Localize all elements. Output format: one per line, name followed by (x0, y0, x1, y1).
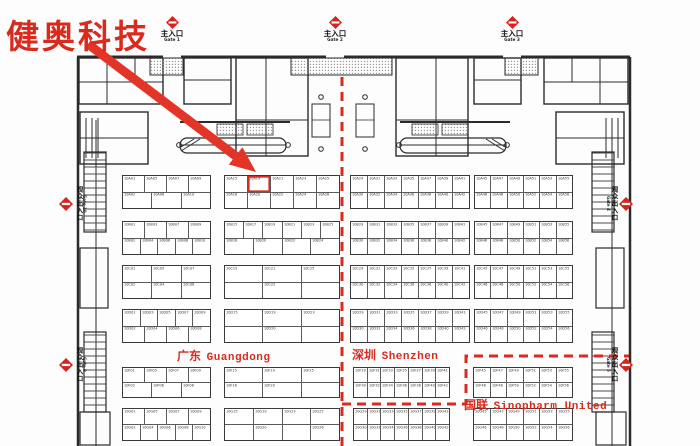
booth-10A10: 10A10 (181, 193, 210, 209)
booth-10G36: 10G36 (394, 425, 408, 440)
booth-10G29: 10G29 (354, 409, 367, 424)
entrance-diamond-icon (329, 16, 342, 29)
booth-10C46: 10C46 (475, 283, 490, 299)
booth-10A26: 10A26 (316, 193, 339, 209)
booth-10C56: 10C56 (556, 283, 572, 299)
booth-10D42: 10D42 (452, 327, 469, 343)
booth-10B23: 10B23 (301, 222, 320, 238)
booth-10B41: 10B41 (452, 222, 469, 238)
booth-10A35: 10A35 (401, 176, 418, 192)
booth-10A51: 10A51 (523, 176, 539, 192)
booth-10C48: 10C48 (490, 283, 506, 299)
region-label-guangdong: 广东 Guangdong (177, 345, 271, 364)
booth-10D46: 10D46 (475, 327, 490, 343)
gate-1-label-en: Gate 1 (142, 38, 202, 42)
booth-10G20: 10G20 (253, 425, 282, 440)
booth-10A36: 10A36 (401, 193, 418, 209)
booth-10A33: 10A33 (384, 176, 401, 192)
booth-10F40: 10F40 (422, 383, 436, 397)
booth-block: 10B2910B3110B3310B3510B3710B3910B4110B30… (350, 221, 470, 255)
booth-10C55: 10C55 (556, 266, 572, 282)
booth-10A19: 10A19 (247, 176, 270, 192)
visitor-gate-left-upper: 观众出入口Gate 10 (59, 186, 86, 221)
booth-10G40: 10G40 (422, 425, 436, 440)
booth-10G38: 10G38 (408, 425, 422, 440)
booth-10F47: 10F47 (490, 368, 507, 382)
booth-10F08: 10F08 (181, 383, 210, 397)
exhibition-floorplan: 10A0110A0510A0710A0910A0210A0810A1010A15… (0, 0, 700, 446)
booth-10A20: 10A20 (247, 193, 270, 209)
booth-block: 10A4510A4710A4910A5110A5310A5510A4610A48… (474, 175, 573, 209)
booth-10G02: 10G02 (123, 425, 140, 440)
booth-10C42: 10C42 (452, 283, 469, 299)
booth-10B34: 10B34 (384, 239, 401, 255)
booth-10D34: 10D34 (384, 327, 401, 343)
booth-10B47: 10B47 (490, 222, 506, 238)
region-label-shenzhen: 深圳 Shenzhen (352, 344, 438, 363)
booth-block: 10D1510D1910D2310D20 (224, 309, 340, 343)
booth-10D47: 10D47 (490, 310, 506, 326)
booth-10D40: 10D40 (435, 327, 452, 343)
visitor-gate-right-upper: Gate 4观众出入口 (606, 186, 633, 221)
booth-10D37: 10D37 (418, 310, 435, 326)
booth-10C06: 10C06 (181, 283, 210, 299)
booth-10F42: 10F42 (435, 383, 449, 397)
booth-10A49: 10A49 (507, 176, 523, 192)
booth-10B49: 10B49 (507, 222, 523, 238)
booth-10C45: 10C45 (475, 266, 490, 282)
booth-10A32: 10A32 (367, 193, 384, 209)
booth-10D09: 10D09 (192, 310, 210, 326)
booth-10A34: 10A34 (384, 193, 401, 209)
booth-10G54: 10G54 (539, 425, 556, 440)
booth-10D29: 10D29 (351, 310, 367, 326)
booth-10C01: 10C01 (123, 266, 151, 282)
booth-10C33: 10C33 (384, 266, 401, 282)
booth-10A45: 10A45 (475, 176, 490, 192)
booth-10B53: 10B53 (539, 222, 555, 238)
booth-10B36: 10B36 (401, 239, 418, 255)
booth-10A52: 10A52 (523, 193, 539, 209)
booth-10F30: 10F30 (354, 383, 367, 397)
booth-10D41: 10D41 (452, 310, 469, 326)
visitor-gate-right-lower: Gate 5观众出入口 (606, 347, 633, 382)
booth-10C37: 10C37 (418, 266, 435, 282)
booth-10B25: 10B25 (320, 222, 339, 238)
booth-10F41: 10F41 (435, 368, 449, 382)
booth-10F34: 10F34 (380, 383, 394, 397)
booth-10F45: 10F45 (474, 368, 490, 382)
booth-10F37: 10F37 (408, 368, 422, 382)
entrance-diamond-icon (59, 358, 73, 372)
booth-10D45: 10D45 (475, 310, 490, 326)
booth-10B46: 10B46 (475, 239, 490, 255)
booth-10A54: 10A54 (539, 193, 555, 209)
booth-10A08: 10A08 (151, 193, 180, 209)
booth-10F07: 10F07 (166, 368, 188, 382)
booth-10B09: 10B09 (188, 222, 210, 238)
booth-10D36: 10D36 (401, 327, 418, 343)
booth-cell-open (282, 425, 311, 440)
booth-10D07: 10D07 (175, 310, 193, 326)
booth-10A21: 10A21 (270, 176, 293, 192)
booth-10B51: 10B51 (523, 222, 539, 238)
region-label-sinopharm: 国联 Sinopharm United (464, 394, 607, 413)
booth-10G05: 10G05 (144, 409, 166, 424)
booth-10C39: 10C39 (435, 266, 452, 282)
booth-10B17: 10B17 (243, 222, 262, 238)
booth-10B30: 10B30 (351, 239, 367, 255)
booth-10G35: 10G35 (394, 409, 408, 424)
booth-10G08: 10G08 (175, 425, 193, 440)
booth-10G07: 10G07 (166, 409, 188, 424)
booth-10C50: 10C50 (507, 283, 523, 299)
booth-10G41: 10G41 (435, 409, 449, 424)
booth-10F16: 10F16 (225, 383, 262, 397)
booth-10F39: 10F39 (422, 368, 436, 382)
booth-10B40: 10B40 (435, 239, 452, 255)
booth-10G15: 10G15 (225, 409, 253, 424)
booth-10B32: 10B32 (367, 239, 384, 255)
booth-10G46: 10G46 (474, 425, 490, 440)
booth-10C25: 10C25 (301, 266, 339, 282)
booth-10D05: 10D05 (157, 310, 175, 326)
entrance-diamond-icon (166, 16, 179, 29)
gate-3-label-en: Gate 3 (482, 38, 542, 42)
booth-grid: 10A0110A0510A0710A0910A0210A0810A1010A15… (0, 0, 700, 446)
booth-10C30: 10C30 (351, 283, 367, 299)
booth-10F05: 10F05 (144, 368, 166, 382)
booth-10A25: 10A25 (316, 176, 339, 192)
booth-block: 10C0110C0510C0710C0210C0410C06 (122, 265, 211, 299)
region-guangdong-en: Guangdong (207, 352, 271, 364)
booth-10A50: 10A50 (507, 193, 523, 209)
booth-10G10: 10G10 (192, 425, 210, 440)
booth-10D32: 10D32 (367, 327, 384, 343)
booth-block: 10C2910C3110C3310C3510C3710C3910C4110C30… (350, 265, 470, 299)
booth-10B20: 10B20 (253, 239, 282, 255)
booth-10G39: 10G39 (422, 409, 436, 424)
booth-10G09: 10G09 (188, 409, 210, 424)
booth-10G25: 10G25 (310, 409, 339, 424)
booth-10D54: 10D54 (539, 327, 555, 343)
booth-10A29: 10A29 (351, 176, 367, 192)
booth-10F29: 10F29 (354, 368, 367, 382)
booth-10G31: 10G31 (367, 409, 381, 424)
gate-2-label-en: Gate 2 (305, 38, 365, 42)
booth-10D39: 10D39 (435, 310, 452, 326)
booth-10B55: 10B55 (556, 222, 572, 238)
booth-10D33: 10D33 (384, 310, 401, 326)
visitor-gate-label: 观众出入口 (610, 347, 617, 382)
booth-10C21: 10C21 (262, 266, 300, 282)
booth-10D38: 10D38 (418, 327, 435, 343)
booth-10D55: 10D55 (556, 310, 572, 326)
booth-10D04: 10D04 (144, 327, 166, 343)
booth-10B15: 10B15 (225, 222, 243, 238)
region-sinopharm-zh: 国联 (464, 398, 488, 412)
booth-10F01: 10F01 (123, 368, 144, 382)
booth-block: 10A2910A3110A3310A3510A3710A3910A4110A30… (350, 175, 470, 209)
entrance-diamond-icon (619, 358, 633, 372)
main-entrance-gate-3: 主入口 Gate 3 (477, 16, 547, 43)
booth-10B22: 10B22 (282, 239, 311, 255)
booth-10A53: 10A53 (539, 176, 555, 192)
entrance-diamond-icon (506, 16, 519, 29)
region-shenzhen-en: Shenzhen (382, 351, 439, 363)
booth-10D30: 10D30 (351, 327, 367, 343)
visitor-gate-label: 观众出入口 (610, 186, 617, 221)
booth-10D20: 10D20 (262, 327, 300, 343)
booth-10F09: 10F09 (188, 368, 210, 382)
booth-10D50: 10D50 (507, 327, 523, 343)
booth-10F02: 10F02 (123, 383, 151, 397)
booth-10G01: 10G01 (123, 409, 144, 424)
booth-block: 10D4510D4710D4910D5110D5310D5510D4610D48… (474, 309, 573, 343)
visitor-gate-number: Gate 9 (82, 357, 86, 372)
booth-10A47: 10A47 (490, 176, 506, 192)
booth-10B16: 10B16 (225, 239, 253, 255)
booth-10C36: 10C36 (401, 283, 418, 299)
booth-10C53: 10C53 (539, 266, 555, 282)
booth-block: 10F2910F3110F3310F3510F3710F3910F4110F30… (353, 367, 450, 398)
booth-10C29: 10C29 (351, 266, 367, 282)
booth-block: 10D2910D3110D3310D3510D3710D3910D4110D30… (350, 309, 470, 343)
region-shenzhen-zh: 深圳 (352, 348, 376, 362)
booth-10B45: 10B45 (475, 222, 490, 238)
booth-10D08: 10D08 (188, 327, 210, 343)
booth-10F06: 10F06 (151, 383, 180, 397)
booth-10C41: 10C41 (452, 266, 469, 282)
booth-10F36: 10F36 (394, 383, 408, 397)
booth-10B42: 10B42 (452, 239, 469, 255)
booth-block: 10F0110F0510F0710F0910F0210F0610F08 (122, 367, 211, 398)
booth-10B19: 10B19 (262, 222, 281, 238)
booth-10D15: 10D15 (225, 310, 262, 326)
booth-10D52: 10D52 (523, 327, 539, 343)
booth-10F35: 10F35 (394, 368, 408, 382)
booth-10B04: 10B04 (140, 239, 158, 255)
booth-10A16: 10A16 (225, 193, 247, 209)
booth-10G33: 10G33 (380, 409, 394, 424)
booth-cell-open (301, 327, 339, 343)
booth-10F20: 10F20 (262, 383, 300, 397)
booth-cell-open (225, 327, 262, 343)
booth-10D01: 10D01 (123, 310, 140, 326)
booth-10B37: 10B37 (418, 222, 435, 238)
booth-10C40: 10C40 (435, 283, 452, 299)
booth-10G50: 10G50 (506, 425, 523, 440)
visitor-gate-label: 观众出入口 (75, 347, 82, 382)
booth-10F31: 10F31 (367, 368, 381, 382)
booth-10A48: 10A48 (490, 193, 506, 209)
booth-block: 10C1510C2110C2510C22 (224, 265, 340, 299)
booth-10C04: 10C04 (151, 283, 180, 299)
booth-10D03: 10D03 (140, 310, 158, 326)
booth-10A56: 10A56 (556, 193, 572, 209)
booth-10C07: 10C07 (181, 266, 210, 282)
booth-10G04: 10G04 (140, 425, 158, 440)
booth-10F25: 10F25 (301, 368, 339, 382)
booth-10C15: 10C15 (225, 266, 262, 282)
booth-10B01: 10B01 (123, 222, 144, 238)
booth-10G56: 10G56 (556, 425, 573, 440)
booth-10C38: 10C38 (418, 283, 435, 299)
booth-10D49: 10D49 (507, 310, 523, 326)
booth-10C54: 10C54 (539, 283, 555, 299)
booth-10B03: 10B03 (144, 222, 166, 238)
region-guangdong-zh: 广东 (177, 349, 201, 363)
booth-block: 10F1510F1910F2510F1610F20 (224, 367, 340, 398)
booth-10F38: 10F38 (408, 383, 422, 397)
company-name-annotation: 健奥科技 (6, 10, 150, 58)
booth-10B06: 10B06 (157, 239, 175, 255)
booth-10D48: 10D48 (490, 327, 506, 343)
booth-10A01: 10A01 (123, 176, 144, 192)
booth-10D51: 10D51 (523, 310, 539, 326)
booth-10A55: 10A55 (556, 176, 572, 192)
booth-block: 10B0110B0310B0710B0910B0210B0410B0610B08… (122, 221, 211, 255)
booth-10D35: 10D35 (401, 310, 418, 326)
booth-10D19: 10D19 (262, 310, 300, 326)
booth-10B24: 10B24 (310, 239, 339, 255)
booth-10A30: 10A30 (351, 193, 367, 209)
booth-10B35: 10B35 (401, 222, 418, 238)
booth-10G23: 10G23 (282, 409, 311, 424)
booth-10C02: 10C02 (123, 283, 151, 299)
booth-block: 10G2910G3110G3310G3510G3710G3910G4110G30… (353, 408, 450, 441)
booth-10C31: 10C31 (367, 266, 384, 282)
booth-block: 10B4510B4710B4910B5110B5310B5510B4610B48… (474, 221, 573, 255)
booth-10B52: 10B52 (523, 239, 539, 255)
booth-10A42: 10A42 (452, 193, 469, 209)
booth-10A22: 10A22 (270, 193, 293, 209)
booth-10A38: 10A38 (418, 193, 435, 209)
booth-10B29: 10B29 (351, 222, 367, 238)
booth-10C52: 10C52 (523, 283, 539, 299)
booth-10C47: 10C47 (490, 266, 506, 282)
booth-10C51: 10C51 (523, 266, 539, 282)
booth-10D31: 10D31 (367, 310, 384, 326)
booth-10B08: 10B08 (175, 239, 193, 255)
booth-10F49: 10F49 (506, 368, 523, 382)
booth-10C34: 10C34 (384, 283, 401, 299)
booth-10F55: 10F55 (556, 368, 573, 382)
booth-block: 10C4510C4710C4910C5110C5310C5510C4610C48… (474, 265, 573, 299)
booth-10C22: 10C22 (262, 283, 300, 299)
booth-10G52: 10G52 (523, 425, 540, 440)
booth-cell-open (301, 383, 339, 397)
booth-10A37: 10A37 (418, 176, 435, 192)
visitor-gate-number: Gate 10 (82, 195, 86, 213)
booth-10A31: 10A31 (367, 176, 384, 192)
booth-10D53: 10D53 (539, 310, 555, 326)
booth-10A07: 10A07 (166, 176, 188, 192)
booth-10D56: 10D56 (556, 327, 572, 343)
booth-10F19: 10F19 (262, 368, 300, 382)
booth-block: 10G1510G1910G2310G2510G2010G26 (224, 408, 340, 441)
visitor-gate-left-lower: 观众出入口Gate 9 (59, 347, 86, 382)
booth-cell-open (225, 283, 262, 299)
booth-10B07: 10B07 (166, 222, 188, 238)
booth-10D02: 10D02 (123, 327, 144, 343)
booth-10A23: 10A23 (293, 176, 316, 192)
booth-10B31: 10B31 (367, 222, 384, 238)
booth-10G19: 10G19 (253, 409, 282, 424)
booth-10A24: 10A24 (293, 193, 316, 209)
booth-10G34: 10G34 (380, 425, 394, 440)
booth-10A09: 10A09 (188, 176, 210, 192)
booth-10G48: 10G48 (490, 425, 507, 440)
main-entrance-gate-2: 主入口 Gate 2 (300, 16, 370, 43)
booth-10C05: 10C05 (151, 266, 180, 282)
booth-block: 10D0110D0310D0510D0710D0910D0210D0410D06… (122, 309, 211, 343)
booth-block: 10B1510B1710B1910B2110B2310B2510B1610B20… (224, 221, 340, 255)
visitor-gate-label: 观众出入口 (75, 186, 82, 221)
booth-10A15: 10A15 (225, 176, 247, 192)
booth-10B54: 10B54 (539, 239, 555, 255)
booth-10G37: 10G37 (408, 409, 422, 424)
booth-10B38: 10B38 (418, 239, 435, 255)
booth-10B48: 10B48 (490, 239, 506, 255)
booth-10C35: 10C35 (401, 266, 418, 282)
booth-10A41: 10A41 (452, 176, 469, 192)
booth-10D23: 10D23 (301, 310, 339, 326)
entrance-diamond-icon (619, 197, 633, 211)
booth-10A40: 10A40 (435, 193, 452, 209)
booth-10A46: 10A46 (475, 193, 490, 209)
booth-10F51: 10F51 (523, 368, 540, 382)
booth-10G42: 10G42 (435, 425, 449, 440)
booth-block: 10A0110A0510A0710A0910A0210A0810A10 (122, 175, 211, 209)
booth-10B10: 10B10 (192, 239, 210, 255)
booth-10B02: 10B02 (123, 239, 140, 255)
entrance-diamond-icon (59, 197, 73, 211)
booth-10B50: 10B50 (507, 239, 523, 255)
booth-10C49: 10C49 (507, 266, 523, 282)
booth-10C32: 10C32 (367, 283, 384, 299)
booth-block: 10G0110G0510G0710G0910G0210G0410G0610G08… (122, 408, 211, 441)
booth-10B21: 10B21 (282, 222, 301, 238)
booth-10A05: 10A05 (144, 176, 166, 192)
booth-10F15: 10F15 (225, 368, 262, 382)
booth-10D06: 10D06 (166, 327, 188, 343)
booth-10B56: 10B56 (556, 239, 572, 255)
booth-10G32: 10G32 (367, 425, 381, 440)
region-sinopharm-en: Sinopharm United (494, 401, 608, 413)
booth-10F32: 10F32 (367, 383, 381, 397)
booth-10F33: 10F33 (380, 368, 394, 382)
booth-cell-open (301, 283, 339, 299)
booth-10G06: 10G06 (157, 425, 175, 440)
booth-10A02: 10A02 (123, 193, 151, 209)
booth-10A39: 10A39 (435, 176, 452, 192)
booth-10G30: 10G30 (354, 425, 367, 440)
booth-10F53: 10F53 (539, 368, 556, 382)
booth-10G26: 10G26 (310, 425, 339, 440)
booth-block: 10A1510A1910A2110A2310A2510A1610A2010A22… (224, 175, 340, 209)
booth-10B39: 10B39 (435, 222, 452, 238)
booth-cell-open (225, 425, 253, 440)
booth-10B33: 10B33 (384, 222, 401, 238)
